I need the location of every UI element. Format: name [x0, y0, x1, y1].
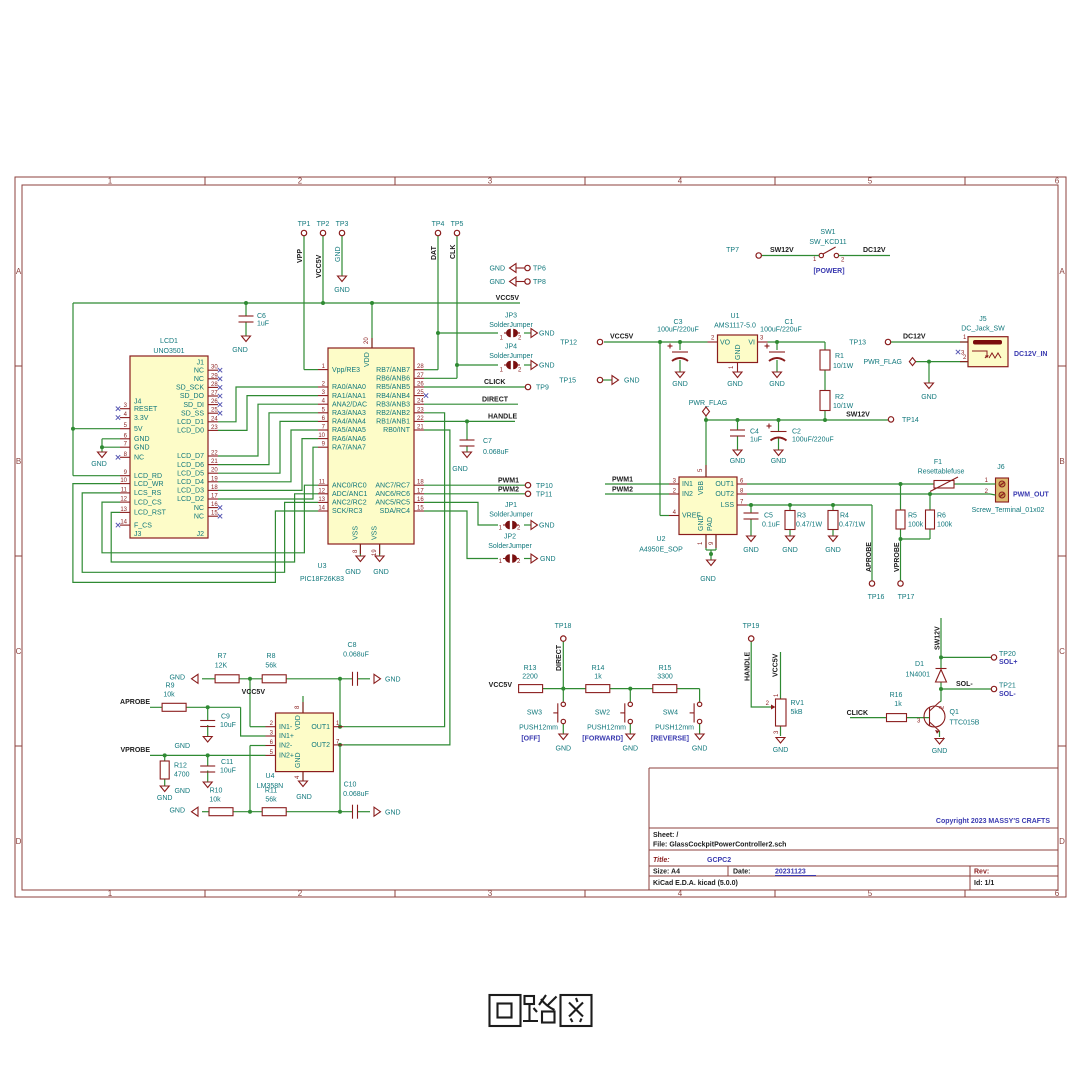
- svg-text:GND: GND: [134, 436, 150, 443]
- svg-text:RB1/ANB1: RB1/ANB1: [376, 419, 410, 426]
- svg-text:21: 21: [417, 425, 424, 431]
- svg-text:D1: D1: [915, 661, 924, 668]
- svg-text:12K: 12K: [215, 663, 228, 670]
- svg-text:C5: C5: [764, 513, 773, 520]
- svg-text:100k: 100k: [908, 522, 924, 529]
- svg-text:HANDLE: HANDLE: [488, 414, 517, 421]
- svg-text:F1: F1: [934, 459, 942, 466]
- svg-text:R12: R12: [174, 763, 187, 770]
- svg-text:GND: GND: [539, 331, 555, 338]
- svg-text:R6: R6: [937, 513, 946, 520]
- svg-text:PWM1: PWM1: [612, 477, 633, 484]
- svg-text:SW12V: SW12V: [935, 626, 942, 650]
- svg-text:GND: GND: [773, 747, 789, 754]
- svg-text:Size: A4: Size: A4: [653, 869, 680, 876]
- svg-text:SOL-: SOL-: [999, 691, 1016, 698]
- svg-text:5kB: 5kB: [791, 709, 803, 716]
- svg-text:U4: U4: [266, 773, 275, 780]
- svg-text:[POWER]: [POWER]: [813, 268, 844, 275]
- svg-text:20231123: 20231123: [775, 869, 806, 876]
- svg-text:GND: GND: [932, 748, 948, 755]
- svg-text:LCD_D2: LCD_D2: [177, 496, 204, 503]
- svg-text:27: 27: [417, 373, 424, 379]
- svg-text:TP15: TP15: [559, 378, 576, 385]
- svg-text:0.1uF: 0.1uF: [762, 522, 780, 529]
- svg-text:J6: J6: [997, 464, 1005, 471]
- svg-text:RB7/ANB7: RB7/ANB7: [376, 367, 410, 374]
- svg-text:GND: GND: [735, 344, 742, 360]
- svg-text:22: 22: [211, 451, 218, 457]
- svg-text:11: 11: [121, 487, 128, 493]
- svg-text:CLICK: CLICK: [847, 710, 868, 717]
- svg-text:JP2: JP2: [504, 534, 516, 541]
- svg-text:PWR_FLAG: PWR_FLAG: [863, 359, 902, 366]
- svg-text:DIRECT: DIRECT: [482, 397, 509, 404]
- svg-text:0.068uF: 0.068uF: [483, 449, 509, 456]
- svg-text:ANC5/RC5: ANC5/RC5: [375, 500, 410, 507]
- svg-text:24: 24: [417, 399, 424, 405]
- svg-text:LCD_RD: LCD_RD: [134, 473, 162, 480]
- svg-text:16: 16: [417, 497, 424, 503]
- svg-text:LCD_D7: LCD_D7: [177, 453, 204, 460]
- svg-text:A4950E_SOP: A4950E_SOP: [639, 547, 683, 554]
- svg-text:A: A: [1059, 267, 1065, 276]
- svg-text:GND: GND: [730, 458, 746, 465]
- svg-text:IN2: IN2: [682, 491, 693, 498]
- svg-text:R9: R9: [166, 683, 175, 690]
- svg-text:14: 14: [120, 520, 127, 526]
- svg-text:RB2/ANB2: RB2/ANB2: [376, 410, 410, 417]
- svg-text:VDD: VDD: [364, 352, 371, 367]
- svg-text:NC: NC: [194, 367, 204, 374]
- svg-text:C10: C10: [344, 782, 357, 789]
- svg-text:RB0/INT: RB0/INT: [383, 427, 411, 434]
- svg-text:RA6/ANA6: RA6/ANA6: [332, 436, 366, 443]
- svg-text:27: 27: [211, 391, 218, 397]
- svg-text:6: 6: [1055, 889, 1060, 898]
- svg-text:VSS: VSS: [353, 526, 360, 540]
- svg-text:1k: 1k: [594, 674, 602, 681]
- svg-text:PUSH12mm: PUSH12mm: [587, 725, 626, 732]
- svg-text:TP13: TP13: [849, 340, 866, 347]
- svg-text:VCC5V: VCC5V: [496, 295, 520, 302]
- svg-text:LCD_D6: LCD_D6: [177, 462, 204, 469]
- svg-text:IN2-: IN2-: [279, 743, 293, 750]
- svg-text:56k: 56k: [265, 663, 277, 670]
- svg-text:LCD_D0: LCD_D0: [177, 428, 204, 435]
- svg-text:VPP: VPP: [297, 249, 304, 263]
- svg-text:17: 17: [417, 488, 424, 494]
- svg-text:Title:: Title:: [653, 857, 670, 864]
- svg-text:GND: GND: [296, 794, 312, 801]
- svg-text:U3: U3: [318, 563, 327, 570]
- svg-text:A: A: [16, 267, 22, 276]
- svg-text:SD_DI: SD_DI: [183, 402, 204, 409]
- svg-text:TP7: TP7: [726, 247, 739, 254]
- svg-text:4700: 4700: [174, 772, 190, 779]
- svg-text:15: 15: [211, 511, 218, 517]
- svg-text:5: 5: [868, 889, 873, 898]
- svg-text:GND: GND: [771, 458, 787, 465]
- svg-text:10k: 10k: [209, 797, 221, 804]
- svg-text:GND: GND: [334, 287, 350, 294]
- svg-text:1N4001: 1N4001: [905, 672, 930, 679]
- svg-text:J5: J5: [979, 316, 987, 323]
- svg-text:SDA/RC4: SDA/RC4: [380, 508, 410, 515]
- svg-text:10/1W: 10/1W: [833, 403, 854, 410]
- svg-text:SW_KCD11: SW_KCD11: [809, 239, 846, 246]
- svg-text:GND: GND: [921, 394, 937, 401]
- svg-text:JP4: JP4: [505, 344, 517, 351]
- svg-text:R16: R16: [890, 692, 903, 699]
- svg-text:SOL+: SOL+: [999, 659, 1017, 666]
- svg-text:LCD_D3: LCD_D3: [177, 488, 204, 495]
- svg-text:GND: GND: [540, 556, 556, 563]
- svg-text:IN2+: IN2+: [279, 753, 294, 760]
- svg-text:TP20: TP20: [999, 651, 1016, 658]
- svg-text:SW2: SW2: [595, 710, 610, 717]
- svg-text:LCD_D1: LCD_D1: [177, 419, 204, 426]
- svg-text:ANA2/DAC: ANA2/DAC: [332, 401, 367, 408]
- svg-text:CLICK: CLICK: [484, 379, 505, 386]
- svg-text:0.068uF: 0.068uF: [343, 652, 369, 659]
- svg-text:0.47/1W: 0.47/1W: [839, 522, 865, 529]
- svg-text:3.3V: 3.3V: [134, 415, 149, 422]
- svg-text:AMS1117-5.0: AMS1117-5.0: [714, 323, 756, 330]
- svg-text:100k: 100k: [937, 522, 953, 529]
- svg-text:Vpp/RE3: Vpp/RE3: [332, 367, 360, 374]
- svg-text:J4: J4: [134, 399, 142, 406]
- svg-text:18: 18: [211, 485, 218, 491]
- svg-text:10: 10: [120, 478, 127, 484]
- svg-text:RESET: RESET: [134, 406, 158, 413]
- svg-text:R8: R8: [267, 653, 276, 660]
- svg-text:OUT1: OUT1: [715, 481, 734, 488]
- svg-text:R4: R4: [840, 513, 849, 520]
- svg-text:5V: 5V: [134, 426, 143, 433]
- svg-text:VCC5V: VCC5V: [610, 334, 634, 341]
- svg-text:56k: 56k: [265, 797, 277, 804]
- svg-text:C: C: [1059, 647, 1065, 656]
- svg-text:LCD_D4: LCD_D4: [177, 479, 204, 486]
- svg-text:12: 12: [120, 497, 127, 503]
- svg-text:1uF: 1uF: [750, 437, 762, 444]
- svg-text:C11: C11: [221, 759, 233, 766]
- svg-text:GND: GND: [174, 743, 190, 750]
- svg-text:Date:: Date:: [733, 869, 751, 876]
- svg-text:ANC0/RC0: ANC0/RC0: [332, 482, 367, 489]
- svg-text:J1: J1: [197, 360, 205, 367]
- svg-text:SolderJumper: SolderJumper: [489, 322, 533, 329]
- svg-text:21: 21: [211, 459, 218, 465]
- svg-text:TP11: TP11: [536, 492, 552, 499]
- svg-text:11: 11: [319, 480, 326, 486]
- svg-text:DC12V_IN: DC12V_IN: [1014, 351, 1047, 358]
- svg-text:GND: GND: [782, 547, 798, 554]
- svg-text:NC: NC: [194, 513, 204, 520]
- svg-text:NC: NC: [134, 455, 144, 462]
- svg-text:VPROBE: VPROBE: [894, 542, 901, 572]
- svg-text:[OFF]: [OFF]: [521, 736, 540, 743]
- svg-text:SW12V: SW12V: [846, 412, 870, 419]
- svg-text:30: 30: [211, 365, 218, 371]
- svg-text:LCD_WR: LCD_WR: [134, 481, 164, 488]
- svg-text:GND: GND: [489, 279, 505, 286]
- svg-text:RA4/ANA4: RA4/ANA4: [332, 419, 366, 426]
- svg-text:SW4: SW4: [663, 710, 678, 717]
- svg-text:GCPC2: GCPC2: [707, 857, 731, 864]
- svg-text:CLK: CLK: [450, 245, 457, 259]
- svg-text:VCC5V: VCC5V: [489, 682, 513, 689]
- svg-text:29: 29: [211, 373, 218, 379]
- svg-text:PIC18F26K83: PIC18F26K83: [300, 576, 344, 583]
- svg-text:OUT2: OUT2: [715, 491, 734, 498]
- svg-text:SD_DO: SD_DO: [180, 393, 205, 400]
- svg-text:GND: GND: [692, 746, 708, 753]
- svg-text:24: 24: [211, 416, 218, 422]
- svg-text:GND: GND: [232, 347, 248, 354]
- svg-text:SolderJumper: SolderJumper: [489, 353, 533, 360]
- svg-text:R1: R1: [835, 353, 844, 360]
- svg-text:TP12: TP12: [560, 340, 577, 347]
- svg-text:18: 18: [417, 480, 424, 486]
- svg-text:2: 2: [298, 889, 303, 898]
- svg-text:C4: C4: [750, 429, 759, 436]
- svg-text:KiCad E.D.A. kicad (5.0.0): KiCad E.D.A. kicad (5.0.0): [653, 880, 738, 887]
- svg-text:C2: C2: [792, 429, 801, 436]
- svg-text:20: 20: [211, 468, 218, 474]
- svg-text:5: 5: [868, 177, 873, 186]
- svg-text:28: 28: [211, 382, 218, 388]
- svg-text:PWM2: PWM2: [498, 487, 519, 494]
- svg-text:C9: C9: [221, 714, 230, 721]
- svg-text:25: 25: [211, 408, 218, 414]
- svg-text:LSS: LSS: [721, 502, 735, 509]
- svg-text:GND: GND: [489, 266, 505, 273]
- svg-text:U2: U2: [657, 536, 666, 543]
- svg-text:GND: GND: [698, 515, 705, 531]
- svg-text:RB4/ANB4: RB4/ANB4: [376, 393, 410, 400]
- svg-text:PUSH12mm: PUSH12mm: [519, 725, 558, 732]
- svg-text:R14: R14: [592, 665, 605, 672]
- svg-text:TP19: TP19: [743, 623, 760, 630]
- svg-text:SD_SCK: SD_SCK: [176, 385, 204, 392]
- svg-text:Screw_Terminal_01x02: Screw_Terminal_01x02: [972, 507, 1045, 514]
- svg-text:R10: R10: [210, 788, 223, 795]
- svg-text:NC: NC: [194, 376, 204, 383]
- svg-text:Resettablefuse: Resettablefuse: [918, 469, 965, 476]
- svg-text:NC: NC: [194, 505, 204, 512]
- svg-text:TP21: TP21: [999, 683, 1016, 690]
- svg-text:GND: GND: [169, 808, 185, 815]
- svg-text:13: 13: [318, 497, 325, 503]
- svg-text:RB6/ANB6: RB6/ANB6: [376, 376, 410, 383]
- svg-text:1uF: 1uF: [257, 321, 269, 328]
- svg-text:GND: GND: [623, 746, 639, 753]
- svg-text:1: 1: [108, 177, 113, 186]
- svg-text:C8: C8: [348, 642, 357, 649]
- svg-text:OUT2: OUT2: [311, 742, 330, 749]
- svg-text:LCS_RS: LCS_RS: [134, 490, 162, 497]
- svg-text:PWM1: PWM1: [498, 478, 519, 485]
- svg-text:TP6: TP6: [533, 266, 546, 273]
- svg-text:25: 25: [417, 390, 424, 396]
- svg-text:0.068uF: 0.068uF: [343, 791, 369, 798]
- svg-text:VPROBE: VPROBE: [120, 747, 150, 754]
- svg-text:D: D: [1059, 837, 1065, 846]
- svg-text:VSS: VSS: [372, 526, 379, 540]
- svg-text:RA1/ANA1: RA1/ANA1: [332, 393, 366, 400]
- svg-text:TP14: TP14: [902, 417, 919, 424]
- svg-text:UNO3501: UNO3501: [153, 348, 184, 355]
- svg-text:Copyright 2023 MASSY'S CRAFTS: Copyright 2023 MASSY'S CRAFTS: [936, 818, 1050, 825]
- svg-text:C1: C1: [785, 319, 794, 326]
- svg-text:PWM2: PWM2: [612, 487, 633, 494]
- svg-text:APROBE: APROBE: [866, 542, 873, 572]
- svg-text:D: D: [16, 837, 22, 846]
- svg-text:R11: R11: [265, 788, 277, 795]
- svg-text:2200: 2200: [522, 674, 538, 681]
- svg-text:R7: R7: [218, 653, 227, 660]
- svg-text:[REVERSE]: [REVERSE]: [651, 736, 689, 743]
- svg-text:RA7/ANA7: RA7/ANA7: [332, 444, 366, 451]
- svg-text:GND: GND: [539, 523, 555, 530]
- svg-text:U1: U1: [731, 313, 740, 320]
- svg-text:DC12V: DC12V: [863, 247, 886, 254]
- svg-text:14: 14: [318, 506, 325, 512]
- svg-text:F_CS: F_CS: [134, 522, 152, 529]
- svg-text:HANDLE: HANDLE: [745, 652, 752, 681]
- svg-text:B: B: [1059, 457, 1064, 466]
- svg-text:ANC2/RC2: ANC2/RC2: [332, 500, 367, 507]
- svg-text:22: 22: [417, 416, 424, 422]
- svg-text:1: 1: [108, 889, 113, 898]
- svg-text:VCC5V: VCC5V: [242, 689, 266, 696]
- svg-text:ANC7/RC7: ANC7/RC7: [375, 482, 410, 489]
- svg-text:GND: GND: [295, 752, 302, 768]
- svg-text:100uF/220uF: 100uF/220uF: [792, 437, 834, 444]
- svg-text:R5: R5: [908, 513, 917, 520]
- svg-text:R2: R2: [835, 394, 844, 401]
- svg-text:15: 15: [417, 506, 424, 512]
- svg-text:C6: C6: [257, 313, 266, 320]
- svg-text:12: 12: [318, 488, 325, 494]
- svg-text:GND: GND: [385, 810, 401, 817]
- svg-text:SW12V: SW12V: [770, 247, 794, 254]
- svg-text:19: 19: [372, 549, 378, 556]
- svg-text:GND: GND: [539, 363, 555, 370]
- svg-text:LCD_D5: LCD_D5: [177, 470, 204, 477]
- svg-text:0.47/1W: 0.47/1W: [796, 522, 822, 529]
- svg-text:PUSH12mm: PUSH12mm: [655, 725, 694, 732]
- svg-text:R3: R3: [797, 513, 806, 520]
- svg-text:SW3: SW3: [527, 710, 542, 717]
- svg-text:6: 6: [1055, 177, 1060, 186]
- svg-text:GND: GND: [769, 381, 785, 388]
- svg-text:3: 3: [488, 177, 493, 186]
- svg-text:TP4: TP4: [432, 221, 445, 228]
- svg-text:3300: 3300: [657, 674, 673, 681]
- svg-text:R15: R15: [659, 665, 672, 672]
- svg-text:GND: GND: [373, 569, 389, 576]
- svg-text:2: 2: [298, 177, 303, 186]
- svg-text:DC_Jack_SW: DC_Jack_SW: [961, 326, 1005, 333]
- svg-text:TP16: TP16: [868, 594, 885, 601]
- svg-text:LCD_RST: LCD_RST: [134, 510, 167, 517]
- svg-text:10uF: 10uF: [220, 722, 236, 729]
- svg-text:Sheet: /: Sheet: /: [653, 832, 678, 839]
- svg-text:TTC015B: TTC015B: [950, 720, 980, 727]
- svg-text:TP8: TP8: [533, 279, 546, 286]
- svg-text:10k: 10k: [163, 692, 175, 699]
- svg-text:100uF/220uF: 100uF/220uF: [760, 327, 802, 334]
- svg-text:TP3: TP3: [336, 221, 349, 228]
- svg-text:GND: GND: [700, 576, 716, 583]
- svg-text:SolderJumper: SolderJumper: [489, 512, 533, 519]
- svg-text:10: 10: [318, 433, 325, 439]
- svg-text:19: 19: [211, 476, 218, 482]
- svg-text:TP18: TP18: [555, 623, 572, 630]
- svg-text:JP1: JP1: [505, 502, 517, 509]
- svg-text:13: 13: [120, 507, 127, 513]
- svg-text:GND: GND: [169, 675, 185, 682]
- svg-text:DAT: DAT: [431, 245, 438, 260]
- svg-text:10uF: 10uF: [220, 768, 236, 775]
- svg-text:VCC5V: VCC5V: [773, 653, 780, 677]
- svg-text:TP10: TP10: [536, 483, 553, 490]
- svg-text:SolderJumper: SolderJumper: [488, 543, 532, 550]
- svg-text:GND: GND: [556, 746, 572, 753]
- svg-text:TP1: TP1: [298, 221, 311, 228]
- svg-text:GND: GND: [727, 381, 743, 388]
- svg-text:VDD: VDD: [295, 715, 302, 730]
- svg-text:J2: J2: [197, 531, 205, 538]
- svg-text:SW1: SW1: [820, 229, 835, 236]
- svg-text:JP3: JP3: [505, 313, 517, 320]
- svg-text:VCC5V: VCC5V: [316, 254, 323, 278]
- svg-text:IN1+: IN1+: [279, 733, 294, 740]
- svg-text:DIRECT: DIRECT: [556, 644, 563, 671]
- svg-text:[FORWARD]: [FORWARD]: [582, 736, 623, 743]
- svg-text:DC12V: DC12V: [903, 334, 926, 341]
- svg-text:28: 28: [417, 364, 424, 370]
- svg-text:RA3/ANA3: RA3/ANA3: [332, 410, 366, 417]
- svg-text:File: GlassCockpitPowerControl: File: GlassCockpitPowerController2.sch: [653, 842, 786, 849]
- svg-text:3: 3: [488, 889, 493, 898]
- svg-text:GND: GND: [743, 547, 759, 554]
- svg-text:Id: 1/1: Id: 1/1: [974, 880, 994, 887]
- svg-text:C: C: [16, 647, 22, 656]
- svg-text:C3: C3: [674, 319, 683, 326]
- svg-text:GND: GND: [825, 547, 841, 554]
- svg-text:VI: VI: [748, 340, 755, 347]
- svg-text:C7: C7: [483, 438, 492, 445]
- svg-text:GND: GND: [624, 378, 640, 385]
- svg-text:VBB: VBB: [698, 481, 705, 495]
- svg-text:TP5: TP5: [451, 221, 464, 228]
- svg-text:PAD: PAD: [707, 517, 714, 531]
- svg-text:TP9: TP9: [536, 385, 549, 392]
- svg-text:RA5/ANA5: RA5/ANA5: [332, 427, 366, 434]
- svg-text:Rev:: Rev:: [974, 869, 989, 876]
- svg-text:17: 17: [211, 494, 218, 500]
- svg-text:RB3/ANB3: RB3/ANB3: [376, 401, 410, 408]
- svg-text:TP17: TP17: [898, 594, 915, 601]
- svg-text:100uF/220uF: 100uF/220uF: [657, 327, 699, 334]
- svg-text:10/1W: 10/1W: [833, 363, 854, 370]
- svg-text:PWM_OUT: PWM_OUT: [1013, 492, 1050, 499]
- svg-text:16: 16: [211, 502, 218, 508]
